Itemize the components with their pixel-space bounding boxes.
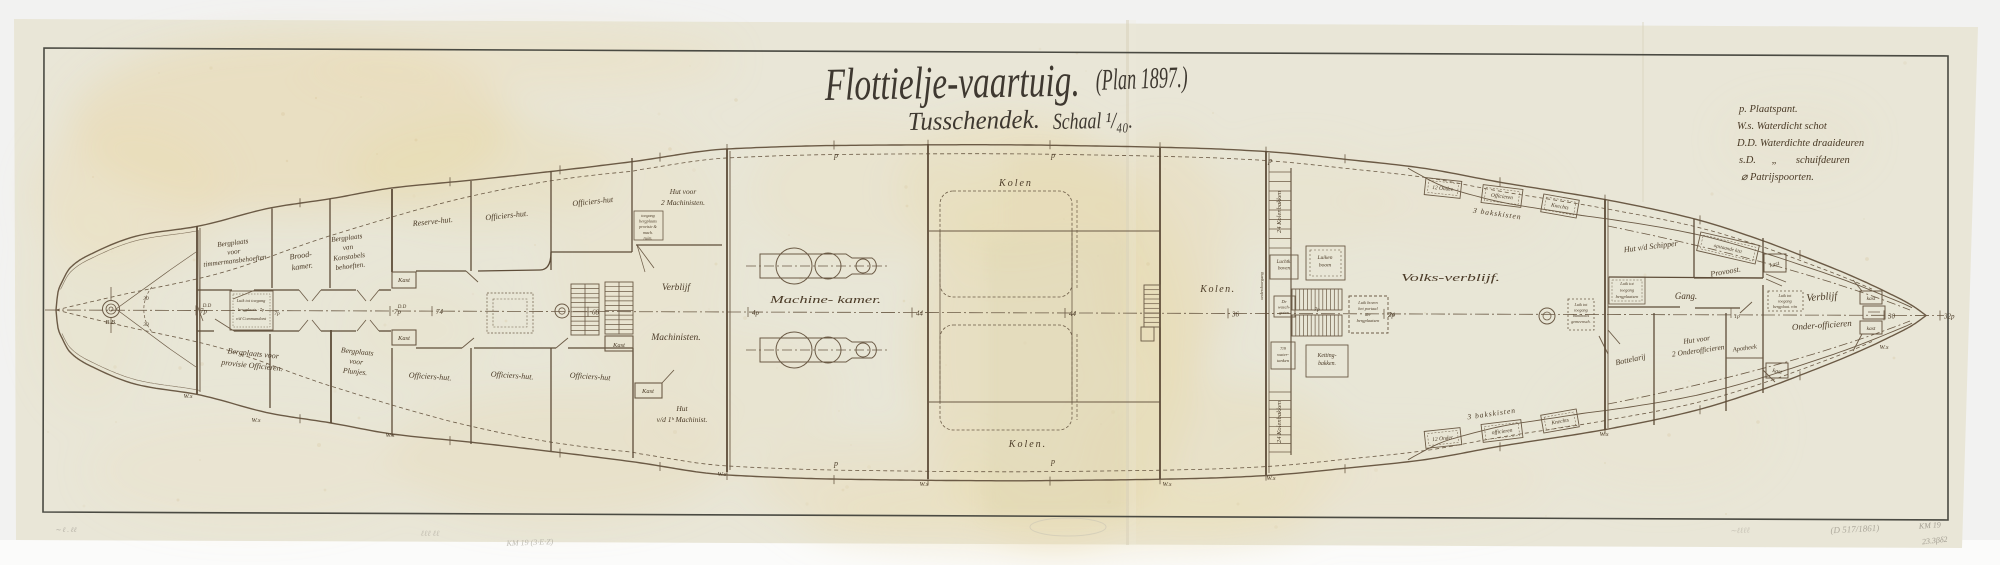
svg-text:kast: kast — [1867, 326, 1876, 332]
svg-text:Kolen.: Kolen. — [1199, 284, 1235, 295]
svg-text:v/d Commandant: v/d Commandant — [236, 316, 267, 321]
svg-text:30: 30 — [142, 322, 149, 328]
svg-text:bergplaats: bergplaats — [639, 219, 657, 224]
svg-text:toegang: toegang — [1574, 308, 1588, 313]
svg-text:toegang: toegang — [1620, 288, 1635, 293]
svg-text:gemeensch.: gemeensch. — [1571, 319, 1590, 324]
svg-text:bergplaatsen: bergplaatsen — [1616, 294, 1640, 299]
svg-text:p. Plaatspant.: p. Plaatspant. — [1738, 104, 1798, 115]
svg-text:W.s: W.s — [184, 393, 193, 400]
svg-text:(Plan 1897.): (Plan 1897.) — [1095, 61, 1188, 97]
svg-text:KM 19: KM 19 — [1918, 520, 1942, 531]
svg-text:v/d 1ʰ Machinist.: v/d 1ʰ Machinist. — [657, 415, 708, 424]
svg-text:Kast: Kast — [397, 277, 410, 284]
svg-text:bergplaatsen: bergplaatsen — [1357, 318, 1381, 323]
svg-text:toegang: toegang — [641, 213, 655, 218]
svg-text:W.s: W.s — [1163, 481, 1172, 488]
svg-text:mach.: mach. — [643, 230, 653, 235]
svg-text:p: p — [1050, 151, 1055, 160]
svg-text:Luchtk.: Luchtk. — [1276, 260, 1292, 265]
svg-text:24 Kolenbakken: 24 Kolenbakken — [1276, 191, 1283, 233]
svg-text:p: p — [1267, 156, 1272, 165]
svg-text:W.s: W.s — [1267, 475, 1276, 482]
svg-text:Luik tot: Luik tot — [1778, 293, 1793, 298]
svg-text:het portaal: het portaal — [1358, 306, 1378, 311]
svg-text:Hut: Hut — [675, 404, 688, 413]
svg-text:32p: 32p — [1943, 313, 1955, 321]
svg-text:Ketting-: Ketting- — [1317, 353, 1337, 359]
svg-text:D.D. Waterdichte draaideuren: D.D. Waterdichte draaideuren — [1736, 138, 1864, 149]
svg-text:68: 68 — [592, 309, 600, 317]
svg-text:24: 24 — [1389, 311, 1395, 318]
svg-text:30: 30 — [142, 296, 149, 302]
svg-text:wasch-: wasch- — [1278, 305, 1291, 310]
svg-text:bakken.: bakken. — [1318, 361, 1336, 367]
svg-text:Tusschendek.: Tusschendek. — [908, 105, 1040, 136]
svg-text:ℓℓℓ ℓℓ: ℓℓℓ ℓℓ — [421, 529, 440, 538]
svg-text:2 Machinisten.: 2 Machinisten. — [661, 198, 705, 207]
svg-text:Luik tot: Luik tot — [1574, 302, 1589, 307]
svg-text:Kast: Kast — [397, 335, 410, 342]
svg-text:voor: voor — [349, 356, 364, 366]
svg-text:ΚΜ 19 (3·Ε·Ζ): ΚΜ 19 (3·Ε·Ζ) — [505, 537, 553, 548]
svg-text:p: p — [1050, 457, 1055, 466]
svg-text:bergplaat. v/m: bergplaat. v/m — [1773, 304, 1797, 309]
svg-text:water-: water- — [1277, 352, 1289, 357]
svg-text:boven: boven — [1278, 267, 1290, 272]
svg-text:Luik tot toegang: Luik tot toegang — [236, 298, 267, 303]
svg-text:Kast: Kast — [641, 388, 654, 395]
svg-text:goten: goten — [1279, 310, 1289, 315]
svg-text:Kolen: Kolen — [998, 178, 1033, 189]
svg-text:44: 44 — [1069, 310, 1077, 318]
svg-text:van: van — [342, 243, 354, 252]
svg-text:Kast: Kast — [612, 342, 625, 349]
svg-text:B.B.: B.B. — [105, 319, 117, 326]
svg-text:p: p — [833, 459, 838, 468]
svg-text:4p: 4p — [752, 309, 760, 317]
svg-text:Luik tot: Luik tot — [1619, 281, 1634, 286]
svg-text:p: p — [833, 151, 838, 160]
svg-text:Luik boven: Luik boven — [1357, 300, 1378, 305]
svg-text:kast: kast — [1867, 296, 1876, 302]
svg-text:W.s. Waterdicht schot: W.s. Waterdicht schot — [1737, 121, 1828, 132]
svg-text:s.D. „ schuifdeuren: s.D. „ schuifdeuren — [1739, 155, 1850, 166]
svg-text:provisie &: provisie & — [638, 224, 657, 229]
svg-text:Verblijf: Verblijf — [662, 282, 691, 293]
svg-text:D.D: D.D — [397, 305, 407, 310]
svg-text:bergplaats · 7p: bergplaats · 7p — [238, 307, 265, 312]
svg-text:W.s: W.s — [1600, 431, 1609, 438]
svg-text:boom: boom — [1319, 263, 1331, 269]
svg-text:1p: 1p — [1734, 314, 1740, 320]
svg-text:7p: 7p — [1314, 307, 1320, 313]
svg-text:Schaal ¹/₄₀.: Schaal ¹/₄₀. — [1053, 108, 1133, 134]
svg-text:W.s: W.s — [718, 471, 727, 478]
svg-text:bunkholts: bunkholts — [1573, 313, 1590, 318]
svg-text:De: De — [1280, 299, 1286, 304]
svg-text:Verblijf: Verblijf — [1806, 291, 1840, 304]
svg-text:∼ ℓ . ℓℓ: ∼ ℓ . ℓℓ — [55, 526, 77, 534]
svg-text:74: 74 — [436, 308, 444, 316]
svg-text:ruim.: ruim. — [644, 235, 653, 240]
svg-text:W.s: W.s — [386, 432, 395, 439]
svg-text:Volks-verblijf.: Volks-verblijf. — [1401, 272, 1500, 284]
svg-text:W.s: W.s — [1880, 344, 1889, 351]
svg-text:toegang: toegang — [1778, 298, 1792, 303]
svg-text:24 Kolenbakken: 24 Kolenbakken — [1276, 401, 1283, 443]
svg-text:D.D: D.D — [202, 304, 212, 309]
svg-text:der: der — [1365, 312, 1371, 317]
svg-text:7p: 7p — [274, 311, 280, 317]
svg-text:7/9: 7/9 — [1280, 346, 1287, 351]
svg-text:Machine- kamer.: Machine- kamer. — [768, 294, 881, 306]
svg-text:∼ℓℓℓℓ: ∼ℓℓℓℓ — [1730, 526, 1751, 536]
svg-text:W.s: W.s — [252, 417, 261, 424]
svg-text:voor: voor — [227, 247, 241, 257]
svg-text:36: 36 — [1231, 310, 1240, 318]
svg-text:Machinisten.: Machinisten. — [650, 333, 700, 343]
svg-text:Luiken: Luiken — [1317, 255, 1333, 261]
svg-text:Flottielje-vaartuig.: Flottielje-vaartuig. — [824, 55, 1081, 110]
svg-text:⌀ Patrijspoorten.: ⌀ Patrijspoorten. — [1741, 172, 1814, 183]
svg-text:30: 30 — [1887, 312, 1896, 320]
svg-text:Kolen.: Kolen. — [1008, 439, 1047, 450]
svg-text:tanken: tanken — [1277, 358, 1290, 363]
svg-text:W.s: W.s — [920, 481, 929, 488]
svg-text:Hut voor: Hut voor — [669, 187, 697, 196]
svg-text:onderdoorgang: onderdoorgang — [1259, 271, 1264, 299]
svg-text:44: 44 — [916, 310, 924, 318]
svg-text:Gang.: Gang. — [1675, 291, 1697, 301]
